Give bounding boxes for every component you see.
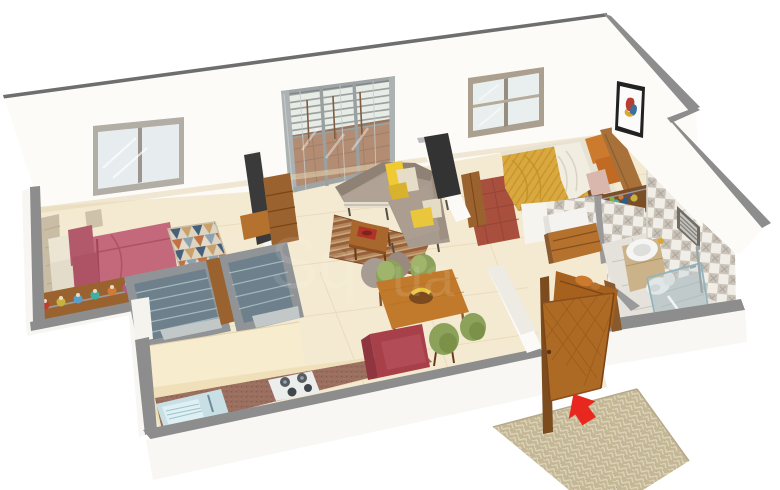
svg-text:Sq: Sq — [270, 224, 358, 304]
svg-text:ua: ua — [392, 245, 455, 308]
